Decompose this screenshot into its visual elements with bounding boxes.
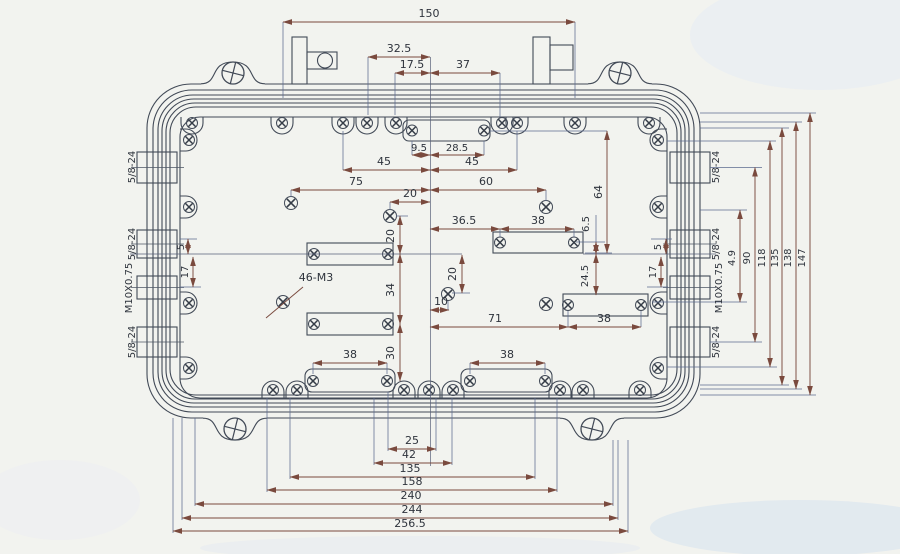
dim-30: 30 [384,346,397,360]
dim-25: 25 [405,434,419,447]
dim-9-5: 9.5 [411,143,427,154]
dim-24-5: 24.5 [580,265,591,287]
dim-45-right: 45 [465,155,479,168]
wall-screw-tabs [180,117,667,398]
port-label-left-2: 5/8-24 [127,228,138,260]
port-label-right-2: 5/8-24 [711,228,722,260]
dim-71: 71 [488,312,502,325]
dim-90: 90 [742,252,753,265]
dim-60: 60 [479,175,493,188]
dim-64: 64 [592,185,605,199]
port-label-left-3: M10X0.75 [124,263,135,313]
port-label-left-4: 5/8-24 [127,326,138,358]
dim-42: 42 [402,448,416,461]
port-label-right-3: M10X0.75 [714,263,725,313]
thread-note-46-M3: 46-M3 [299,271,333,284]
dim-38-bottom-left: 38 [343,348,357,361]
dim-38-bottom-right: 38 [500,348,514,361]
dim-17-5: 17.5 [400,58,425,71]
enclosure-outline [147,60,700,443]
dim-overall-150: 150 [419,7,440,20]
threaded-ports [131,152,716,357]
dim-118: 118 [757,248,768,267]
top-brackets [292,37,573,84]
dim-158: 158 [402,475,423,488]
dim-17-left: 17 [180,266,191,279]
dim-240: 240 [401,489,422,502]
reference-lines [130,57,716,466]
port-label-left-1: 5/8-24 [127,151,138,183]
dim-38-right2: 38 [597,312,611,325]
dim-5-left: 5 [176,244,187,250]
engineering-drawing-canvas: 150 32.5 17.5 37 9.5 28.5 45 45 75 60 20… [0,0,900,554]
dim-32-5: 32.5 [387,42,412,55]
dim-6-5: 6.5 [581,216,592,232]
dim-135-bottom: 135 [400,462,421,475]
dim-37: 37 [456,58,470,71]
port-label-right-1: 5/8-24 [711,151,722,183]
dim-135-right: 135 [770,248,781,267]
dim-138: 138 [783,248,794,267]
dim-17-right: 17 [648,266,659,279]
dim-20-top: 20 [403,187,417,200]
dim-256-5: 256.5 [394,517,426,530]
dim-28-5: 28.5 [446,143,468,154]
dim-20-mid: 20 [446,267,459,281]
dim-5-right: 5 [653,244,664,250]
scanned-drawing-page: 150 32.5 17.5 37 9.5 28.5 45 45 75 60 20… [0,0,900,554]
dim-75: 75 [349,175,363,188]
dim-4-9: 4.9 [727,250,738,266]
dim-45-left: 45 [377,155,391,168]
port-label-right-4: 5/8-24 [711,326,722,358]
dim-147: 147 [797,248,808,267]
dim-244: 244 [402,503,423,516]
dim-38-right1: 38 [531,214,545,227]
dim-34: 34 [384,283,397,297]
bracket-hole-icon [318,53,333,68]
dim-10: 10 [434,295,448,308]
dim-36-5: 36.5 [452,214,477,227]
dim-20-left: 20 [384,229,397,243]
